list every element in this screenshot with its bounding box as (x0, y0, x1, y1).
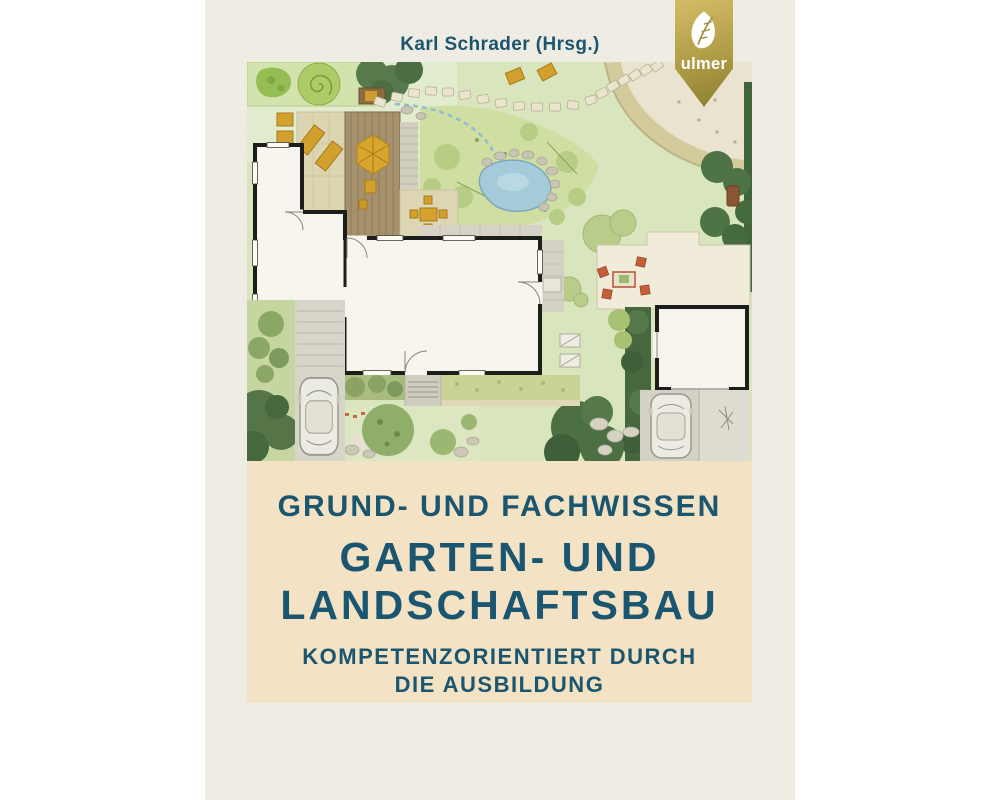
leaf-icon (687, 9, 721, 53)
page-background: { "page": { "background_color": "#ffffff… (0, 0, 1000, 800)
car (649, 394, 694, 458)
left-driveway (295, 300, 345, 461)
garage (653, 307, 747, 393)
subtitle-line-2: DIE AUSBILDUNG (395, 671, 605, 699)
publisher-name: ulmer (681, 55, 727, 74)
title-band: GRUND- UND FACHWISSEN GARTEN- UND LANDSC… (247, 461, 752, 703)
garden-plan-illustration (247, 62, 752, 461)
garden-plan-svg (247, 62, 752, 461)
subtitle-line-1: KOMPETENZORIENTIERT DURCH (302, 643, 696, 671)
book-cover: Karl Schrader (Hrsg.) (205, 0, 795, 800)
title-line-1: GARTEN- UND (340, 536, 660, 579)
west-bed (247, 300, 299, 461)
title-line-2: LANDSCHAFTSBAU (280, 584, 718, 627)
right-driveway (640, 390, 750, 461)
car (298, 378, 341, 455)
title-kicker: GRUND- UND FACHWISSEN (278, 492, 722, 522)
